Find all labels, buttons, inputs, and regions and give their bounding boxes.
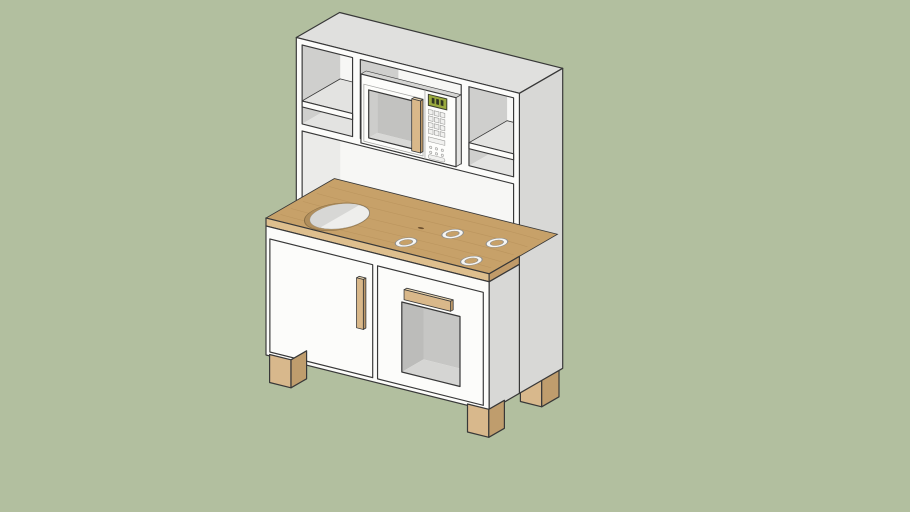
model-viewport[interactable]: play kitchen bbox=[0, 0, 910, 512]
cabinet-right-side bbox=[489, 264, 519, 411]
play-kitchen-model[interactable]: play kitchen bbox=[0, 0, 910, 512]
cabinet-door-handle bbox=[357, 276, 366, 329]
microwave-handle bbox=[412, 97, 423, 153]
